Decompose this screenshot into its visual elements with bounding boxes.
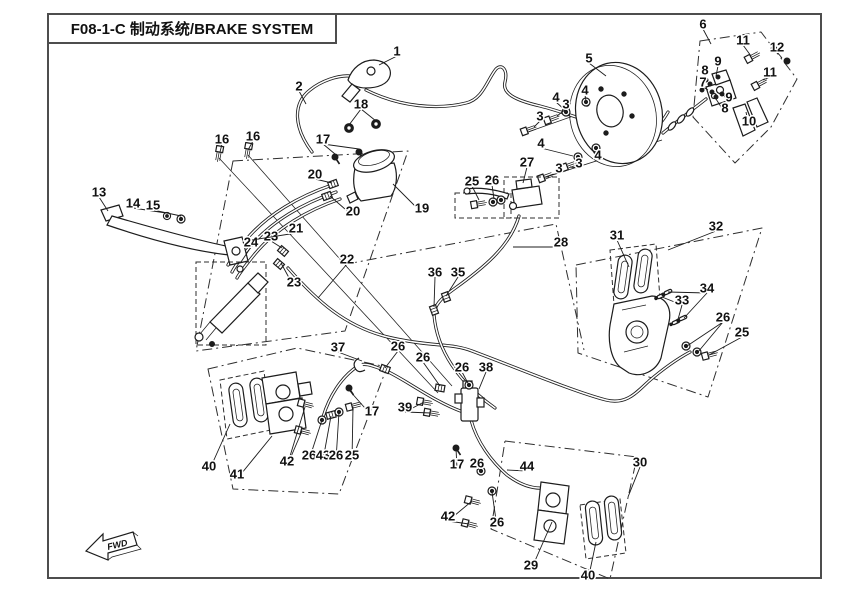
callout-8: 8 bbox=[721, 101, 728, 116]
callout-9: 9 bbox=[714, 54, 721, 69]
callout-28: 28 bbox=[554, 235, 568, 250]
callout-4: 4 bbox=[552, 90, 560, 105]
callout-leader-4 bbox=[541, 148, 573, 156]
title-box: F08-1-C 制动系统/BRAKE SYSTEM bbox=[47, 13, 337, 44]
callout-19: 19 bbox=[415, 201, 429, 216]
callout-leader-26 bbox=[385, 351, 398, 368]
callout-24: 24 bbox=[244, 235, 259, 250]
callout-20: 20 bbox=[308, 167, 322, 182]
callout-42: 42 bbox=[441, 509, 455, 524]
page-title: F08-1-C 制动系统/BRAKE SYSTEM bbox=[71, 18, 314, 39]
callout-4: 4 bbox=[537, 136, 545, 151]
callout-26: 26 bbox=[470, 456, 484, 471]
callout-26: 26 bbox=[490, 515, 504, 530]
callout-leader-26 bbox=[698, 322, 723, 352]
callout-26: 26 bbox=[302, 448, 316, 463]
callout-36: 36 bbox=[428, 265, 442, 280]
callout-26: 26 bbox=[485, 173, 499, 188]
callout-25: 25 bbox=[735, 325, 749, 340]
callout-26: 26 bbox=[455, 360, 469, 375]
bottom-left-caliper bbox=[262, 372, 363, 437]
callout-32: 32 bbox=[709, 219, 723, 234]
callout-6: 6 bbox=[699, 17, 706, 32]
callout-3: 3 bbox=[555, 161, 562, 176]
callout-4: 4 bbox=[581, 83, 589, 98]
callout-26: 26 bbox=[416, 350, 430, 365]
callout-35: 35 bbox=[451, 265, 465, 280]
callout-25: 25 bbox=[465, 174, 479, 189]
callout-2: 2 bbox=[295, 79, 302, 94]
callout-leader-38 bbox=[479, 372, 486, 389]
callout-16: 16 bbox=[246, 129, 260, 144]
junction-to-bottom-right-hose bbox=[471, 420, 544, 488]
callout-22: 22 bbox=[340, 252, 354, 267]
fwd-arrow: FWD bbox=[86, 532, 141, 560]
callout-14: 14 bbox=[126, 196, 141, 211]
right-caliper bbox=[609, 289, 718, 375]
callout-11: 11 bbox=[736, 33, 750, 48]
callout-21: 21 bbox=[289, 221, 303, 236]
callout-17: 17 bbox=[316, 132, 330, 147]
callout-leader-36 bbox=[434, 277, 435, 307]
callout-29: 29 bbox=[524, 558, 538, 573]
callout-7: 7 bbox=[699, 75, 706, 90]
callout-leader-32 bbox=[668, 231, 716, 250]
callout-11: 11 bbox=[763, 65, 777, 80]
callout-18: 18 bbox=[354, 97, 368, 112]
callout-40: 40 bbox=[581, 568, 595, 583]
callout-3: 3 bbox=[562, 97, 569, 112]
callout-5: 5 bbox=[585, 51, 592, 66]
callout-30: 30 bbox=[633, 455, 647, 470]
callout-1: 1 bbox=[393, 44, 400, 59]
callout-leader-26 bbox=[423, 362, 440, 386]
callout-38: 38 bbox=[479, 360, 493, 375]
callout-17: 17 bbox=[450, 457, 464, 472]
hose-grommets bbox=[345, 120, 381, 133]
callout-39: 39 bbox=[398, 400, 412, 415]
callout-42: 42 bbox=[280, 454, 294, 469]
callout-20: 20 bbox=[346, 204, 360, 219]
diagram-svg: FWD 121817161654433443361112119879810131… bbox=[0, 0, 860, 600]
callout-23: 23 bbox=[287, 275, 301, 290]
callout-leader-26 bbox=[687, 322, 723, 346]
callout-25: 25 bbox=[345, 448, 359, 463]
callout-10: 10 bbox=[742, 114, 756, 129]
callout-3: 3 bbox=[536, 109, 543, 124]
bottom-right-caliper-pads bbox=[580, 495, 626, 559]
page: { "header": { "title": "F08-1-C 制动系统/BRA… bbox=[0, 0, 860, 600]
callout-33: 33 bbox=[675, 293, 689, 308]
callout-31: 31 bbox=[610, 228, 624, 243]
callout-15: 15 bbox=[146, 198, 160, 213]
callout-26: 26 bbox=[716, 310, 730, 325]
callout-34: 34 bbox=[700, 281, 715, 296]
callout-41: 41 bbox=[230, 467, 244, 482]
callout-12: 12 bbox=[770, 40, 784, 55]
callout-13: 13 bbox=[92, 185, 106, 200]
brake-pedal bbox=[101, 142, 253, 272]
callout-37: 37 bbox=[331, 340, 345, 355]
callout-4: 4 bbox=[594, 148, 602, 163]
callout-44: 44 bbox=[520, 459, 535, 474]
callout-26: 26 bbox=[329, 448, 343, 463]
callout-26: 26 bbox=[391, 339, 405, 354]
callout-40: 40 bbox=[202, 459, 216, 474]
callout-leader-25 bbox=[709, 337, 742, 355]
callout-17: 17 bbox=[365, 404, 379, 419]
callout-27: 27 bbox=[520, 155, 534, 170]
callout-16: 16 bbox=[215, 132, 229, 147]
boundary-center bbox=[347, 224, 584, 350]
callout-3: 3 bbox=[575, 156, 582, 171]
